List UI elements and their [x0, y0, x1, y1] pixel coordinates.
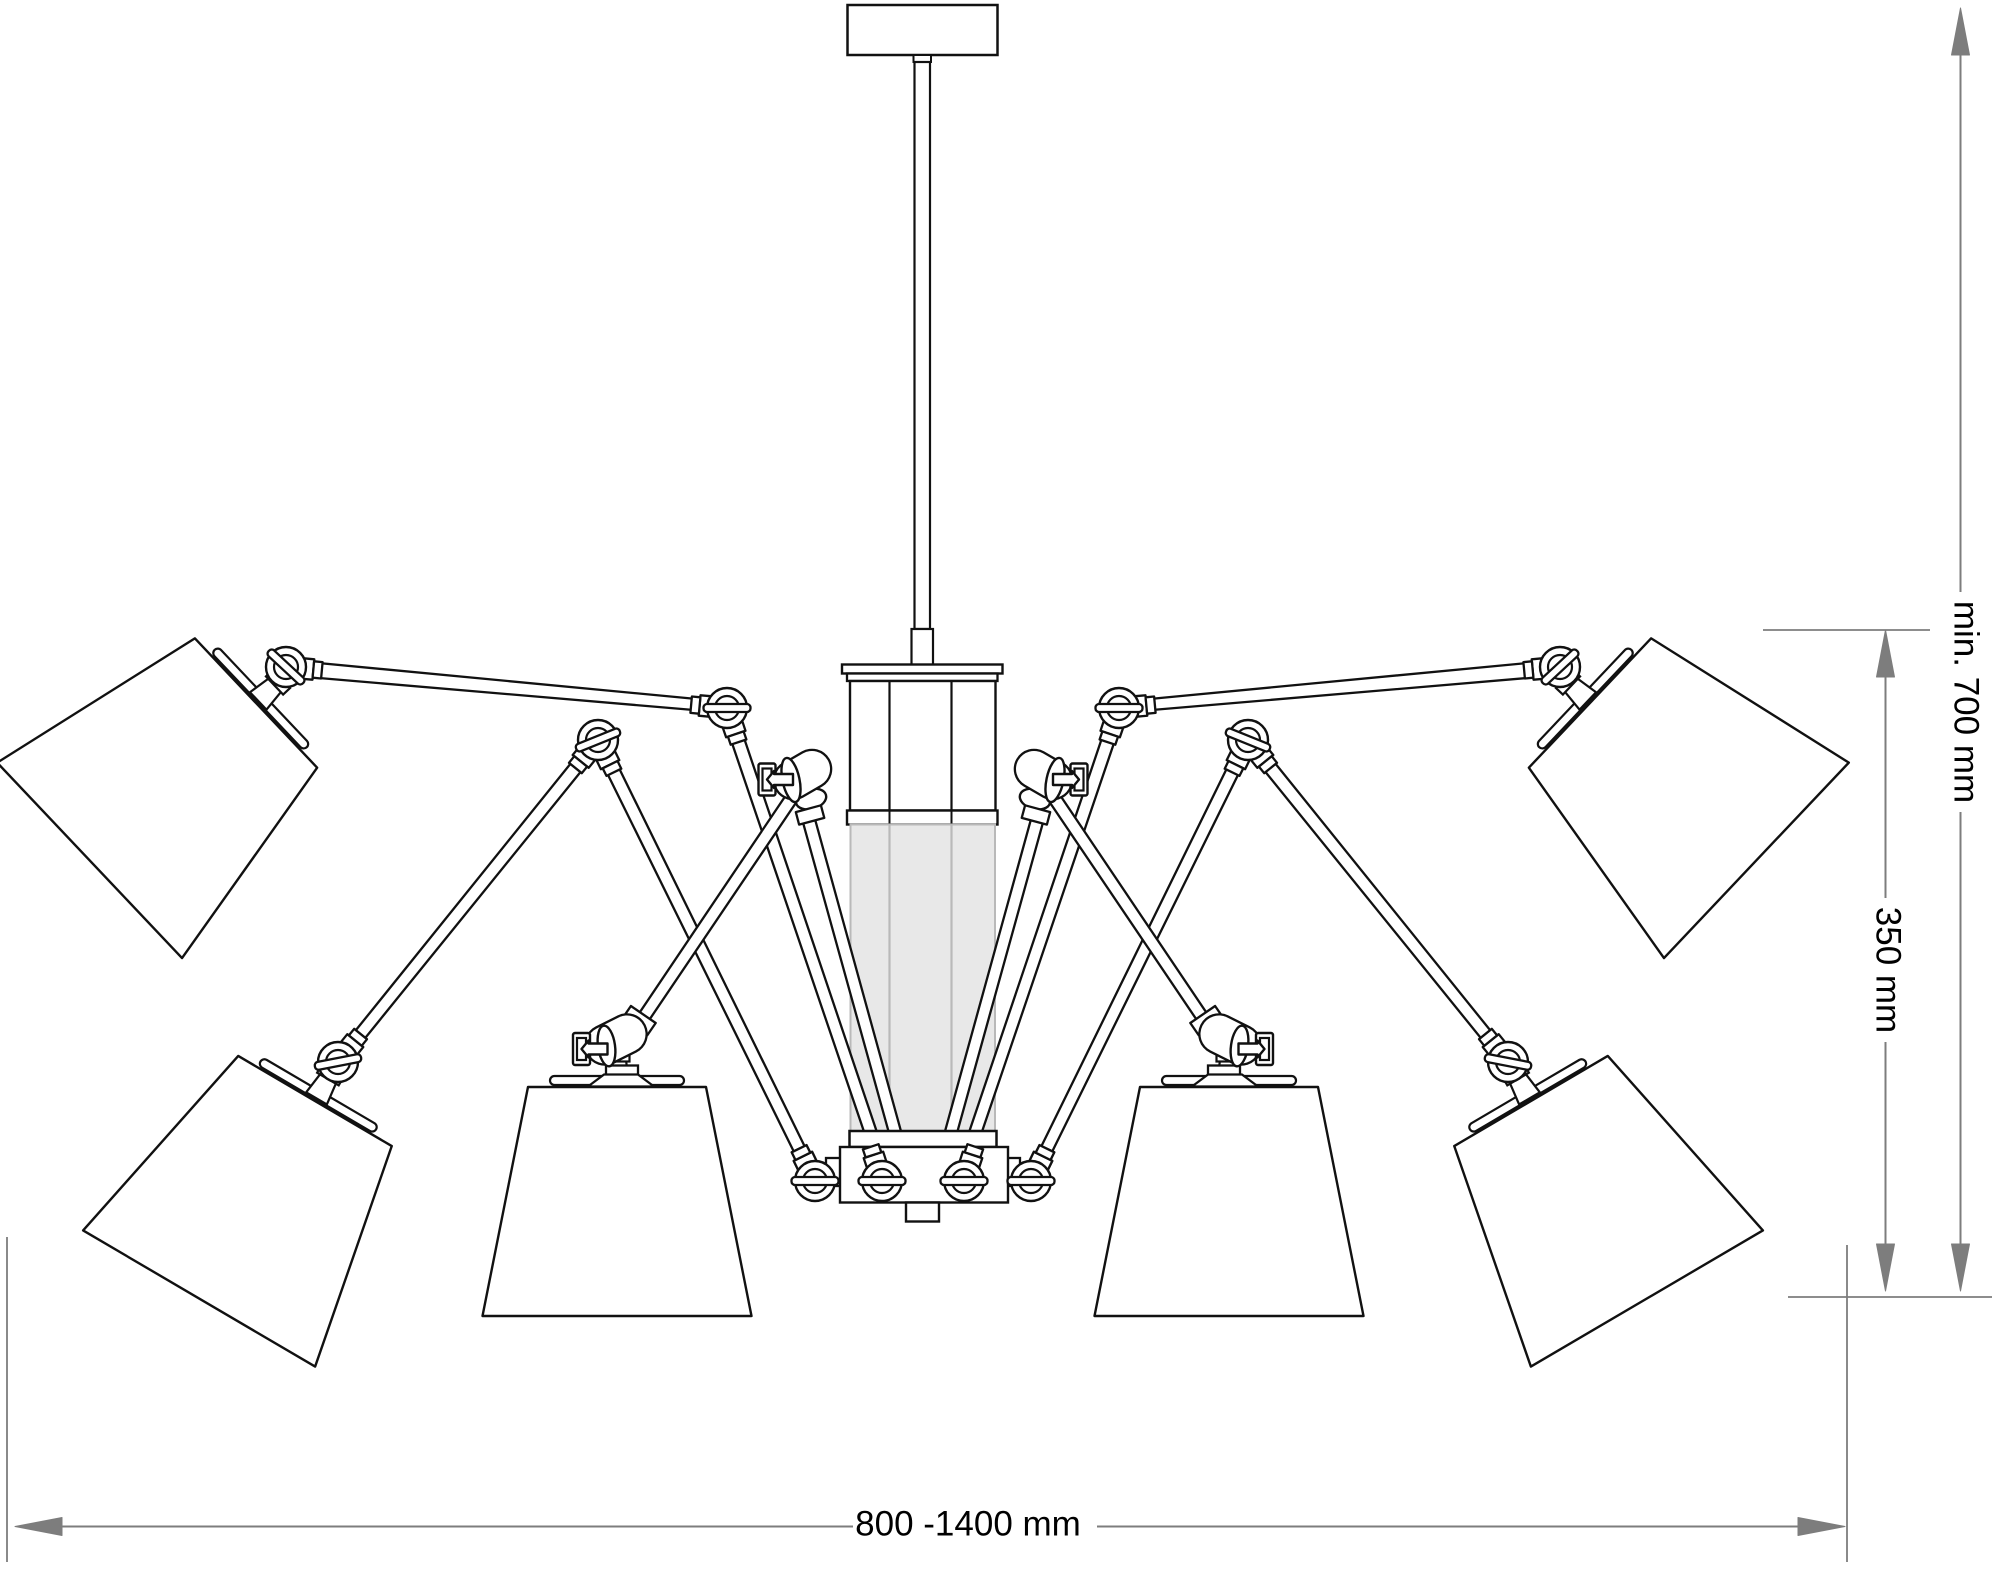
- svg-text:min. 700 mm: min. 700 mm: [1947, 601, 1986, 803]
- svg-text:800 -1400 mm: 800 -1400 mm: [855, 1505, 1081, 1544]
- svg-text:350 mm: 350 mm: [1869, 907, 1908, 1033]
